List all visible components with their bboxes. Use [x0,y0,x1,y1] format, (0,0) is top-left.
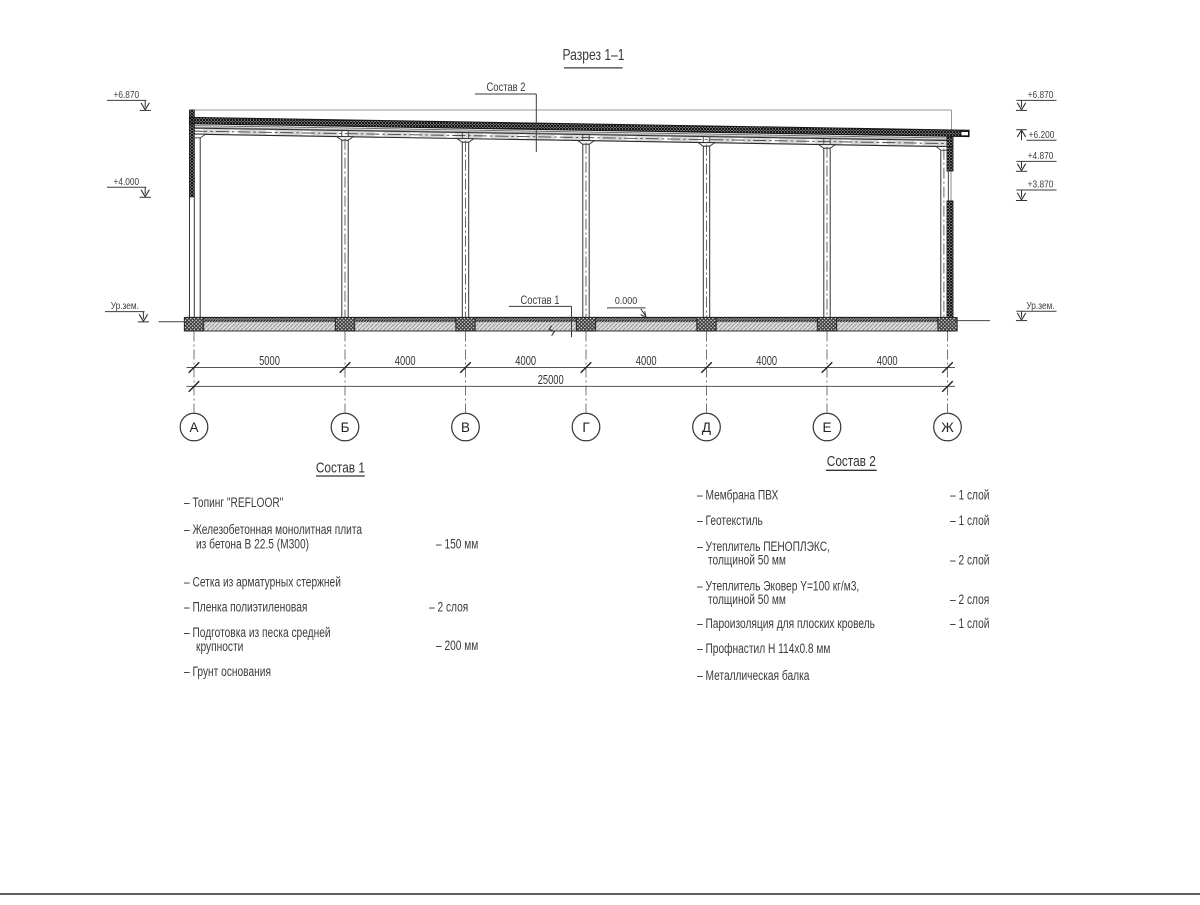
svg-text:– 2 слоя: – 2 слоя [950,591,989,607]
svg-text:крупности: крупности [196,638,243,654]
svg-text:толщиной 50 мм: толщиной 50 мм [708,552,786,568]
svg-text:Г: Г [582,420,590,435]
svg-text:Состав 2: Состав 2 [486,81,525,94]
svg-text:– Пленка полиэтиленовая: – Пленка полиэтиленовая [184,599,307,615]
svg-text:толщиной 50 мм: толщиной 50 мм [708,591,786,607]
svg-text:– Мембрана ПВХ: – Мембрана ПВХ [697,487,778,503]
svg-text:– Профнастил Н 114х0.8 мм: – Профнастил Н 114х0.8 мм [697,640,830,656]
svg-text:Состав 2: Состав 2 [827,453,876,470]
svg-text:4000: 4000 [636,355,657,369]
svg-text:5000: 5000 [259,355,280,369]
svg-text:– 2 слоя: – 2 слоя [429,599,468,615]
svg-text:– Сетка из арматурных стержней: – Сетка из арматурных стержней [184,574,341,590]
svg-text:В: В [461,420,470,435]
svg-text:– 1 слой: – 1 слой [950,487,989,503]
svg-text:– 1 слой: – 1 слой [950,512,989,528]
svg-text:– 200 мм: – 200 мм [436,637,478,653]
svg-text:4000: 4000 [395,355,416,369]
svg-text:– 1 слой: – 1 слой [950,615,989,631]
svg-text:+3.870: +3.870 [1028,179,1054,190]
svg-text:– Пароизоляция для плоских кро: – Пароизоляция для плоских кровель [697,615,875,631]
svg-text:– Грунт основания: – Грунт основания [184,663,271,679]
svg-text:4000: 4000 [877,355,898,369]
svg-text:– Металлическая балка: – Металлическая балка [697,667,810,683]
svg-text:25000: 25000 [538,374,564,388]
svg-text:Б: Б [341,420,350,435]
svg-text:4000: 4000 [756,355,777,369]
svg-text:Е: Е [822,420,831,435]
svg-text:Д: Д [702,420,711,435]
svg-text:– 2 слой: – 2 слой [950,552,989,568]
svg-text:+4.000: +4.000 [113,176,139,187]
svg-text:– Геотекстиль: – Геотекстиль [697,512,763,528]
svg-text:+6.200: +6.200 [1029,129,1055,140]
svg-text:Состав 1: Состав 1 [520,294,559,307]
svg-text:Разрез 1–1: Разрез 1–1 [563,45,625,63]
svg-text:– 150 мм: – 150 мм [436,536,478,552]
svg-text:А: А [189,420,198,435]
svg-text:+6.870: +6.870 [113,89,139,100]
svg-text:Состав 1: Состав 1 [316,459,365,476]
svg-text:Ур.зем.: Ур.зем. [1026,300,1054,311]
svg-text:– Топинг "REFLOOR": – Топинг "REFLOOR" [184,495,283,511]
svg-text:Ур.зем.: Ур.зем. [111,301,139,312]
svg-text:0.000: 0.000 [615,295,638,307]
svg-text:4000: 4000 [515,355,536,369]
svg-text:– Железобетонная монолитная п: – Железобетонная монолитная плита [184,521,362,537]
svg-text:+6.870: +6.870 [1028,89,1054,100]
svg-text:Ж: Ж [941,420,954,435]
svg-text:+4.870: +4.870 [1028,150,1054,161]
svg-text:из бетона В 22.5 (М300): из бетона В 22.5 (М300) [196,536,309,552]
